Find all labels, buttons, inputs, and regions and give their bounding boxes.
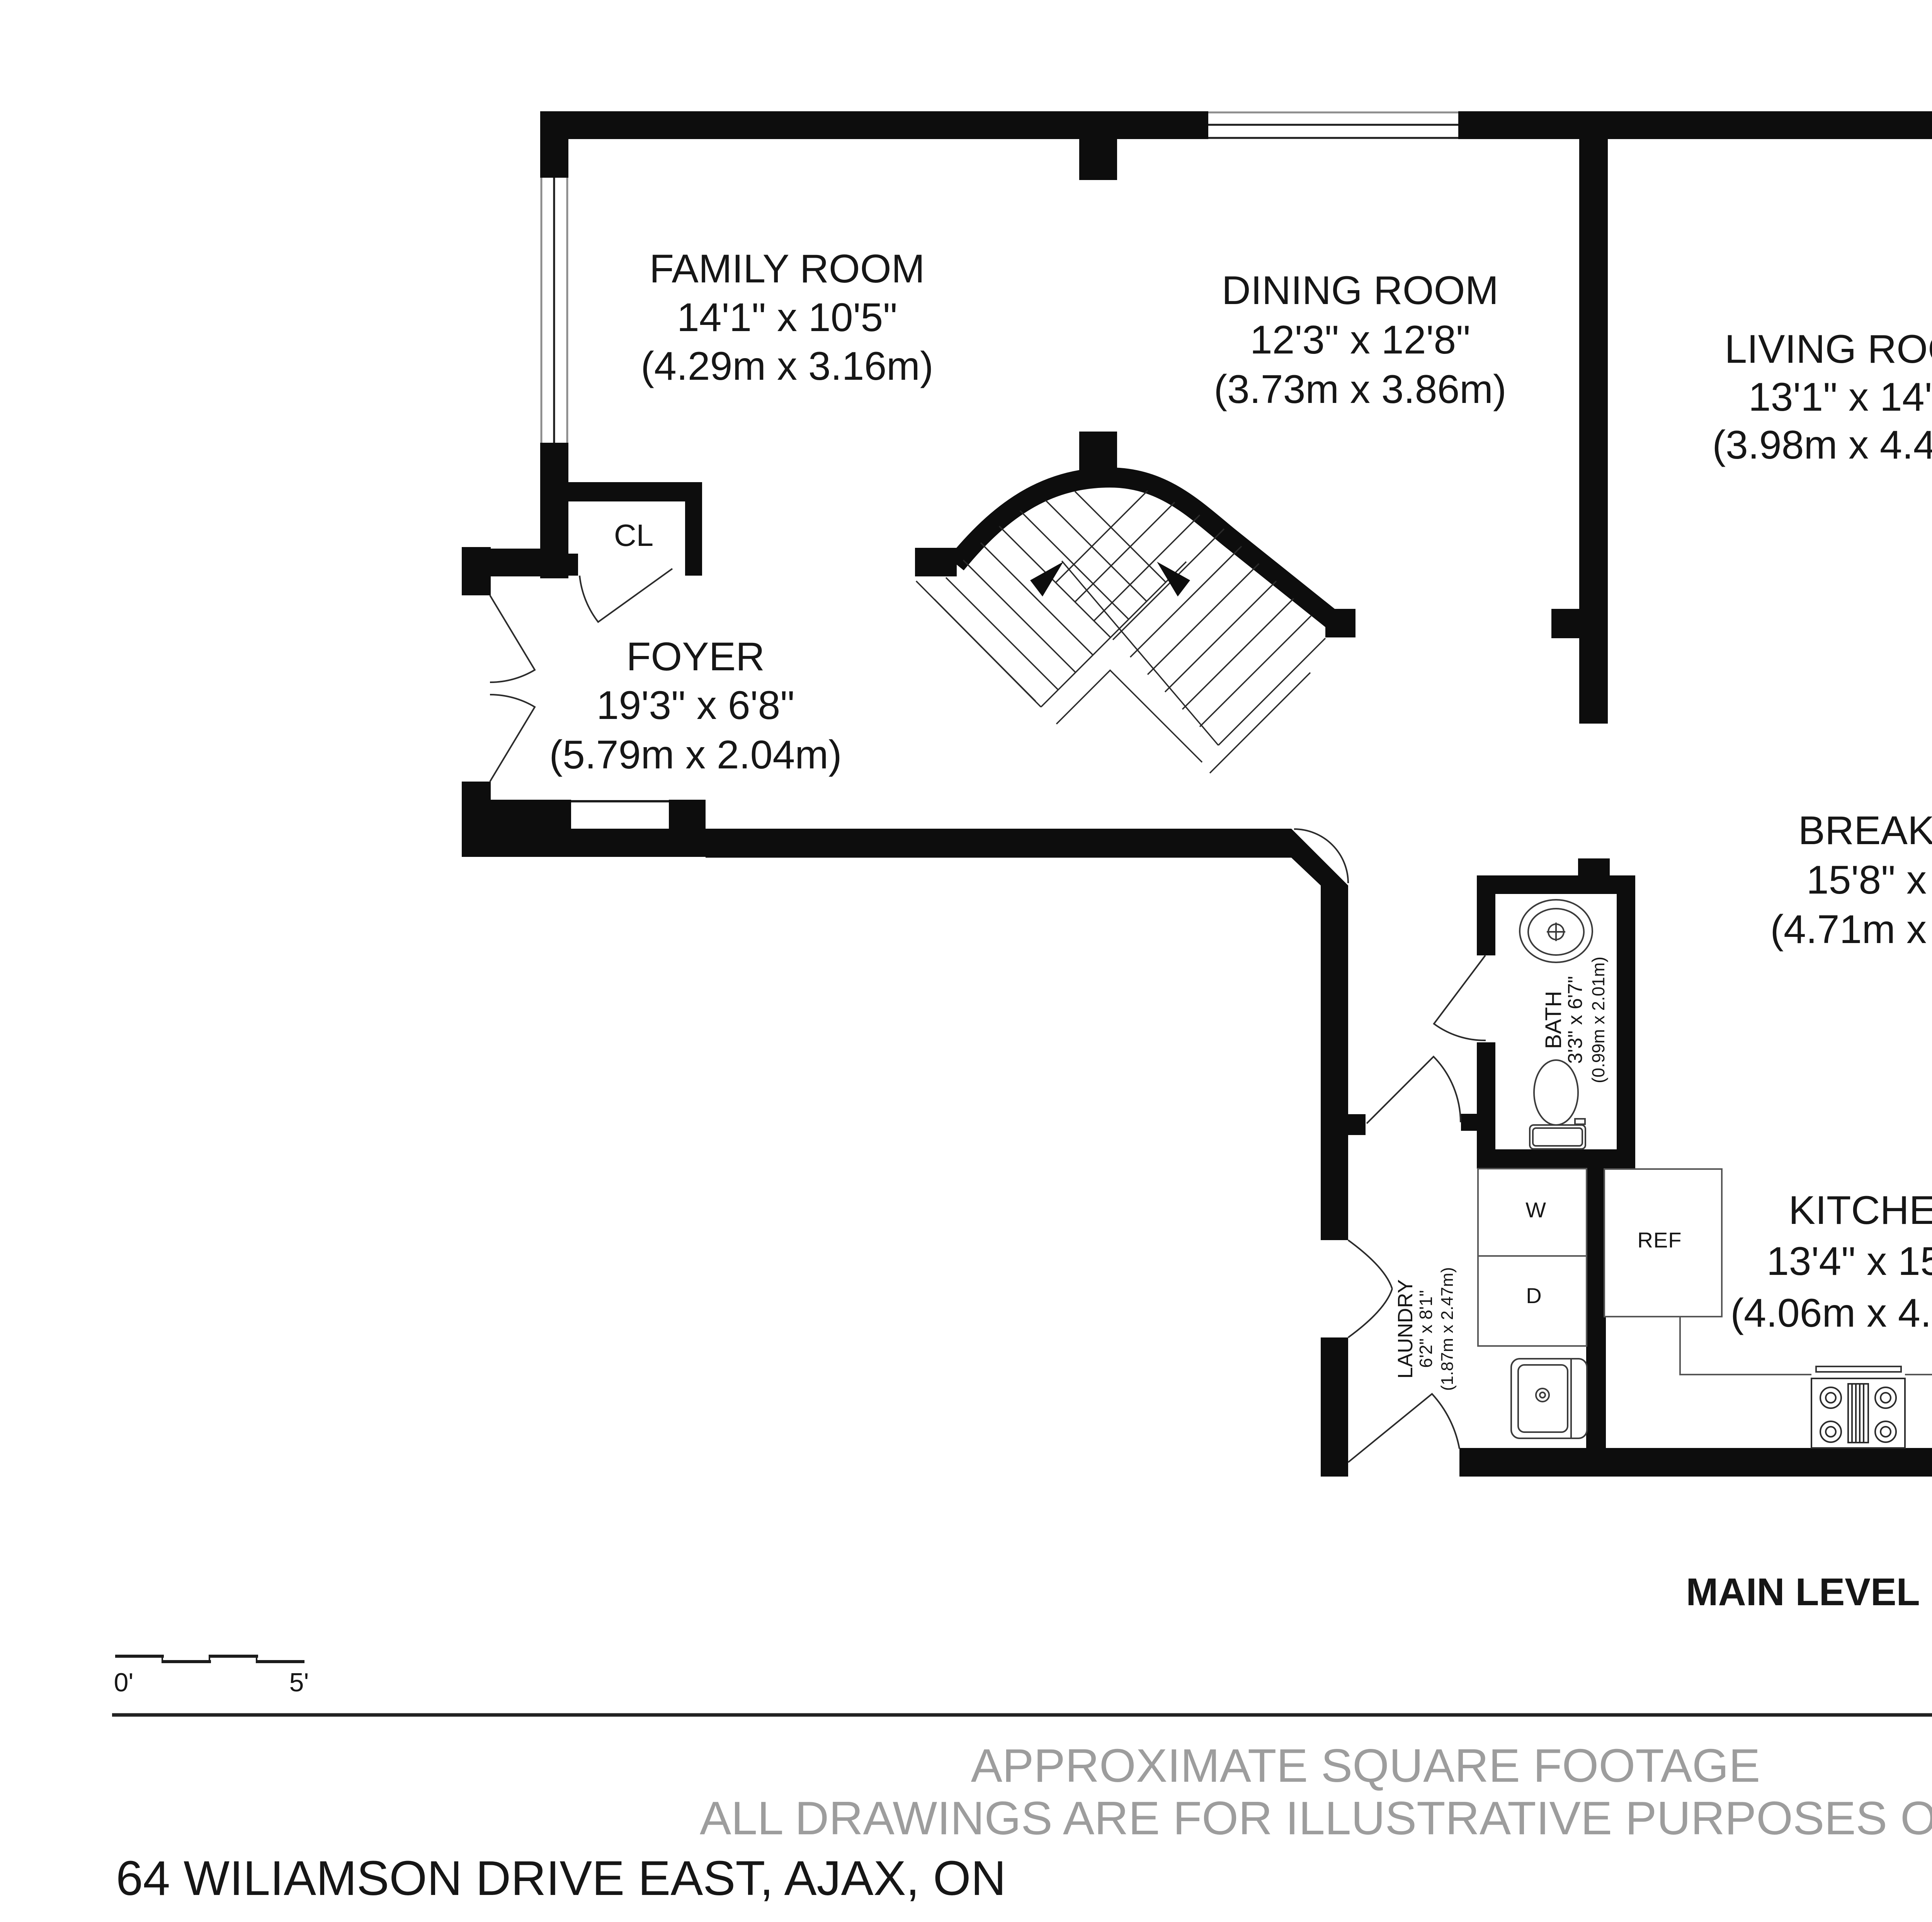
svg-text:MAIN LEVEL: MAIN LEVEL — [1686, 1570, 1920, 1614]
svg-text:BATH: BATH — [1541, 991, 1566, 1049]
svg-text:(1.87m x 2.47m): (1.87m x 2.47m) — [1438, 1267, 1457, 1391]
svg-text:15'8" x 10'9": 15'8" x 10'9" — [1806, 858, 1932, 902]
svg-text:(4.06m x 4.57m): (4.06m x 4.57m) — [1730, 1291, 1932, 1336]
svg-text:FAMILY ROOM: FAMILY ROOM — [650, 246, 925, 291]
svg-text:6'2" x 8'1": 6'2" x 8'1" — [1416, 1290, 1436, 1368]
svg-text:(4.71m x 3.26m): (4.71m x 3.26m) — [1770, 907, 1932, 952]
svg-text:D: D — [1526, 1283, 1542, 1308]
svg-text:13'1" x 14'7": 13'1" x 14'7" — [1748, 375, 1932, 420]
svg-text:KITCHEN: KITCHEN — [1789, 1188, 1932, 1233]
svg-text:REF: REF — [1638, 1228, 1682, 1252]
svg-text:5': 5' — [289, 1668, 309, 1697]
svg-text:(0.99m x 2.01m): (0.99m x 2.01m) — [1588, 957, 1608, 1083]
svg-text:(5.79m x 2.04m): (5.79m x 2.04m) — [549, 732, 842, 777]
svg-text:19'3" x 6'8": 19'3" x 6'8" — [597, 683, 795, 728]
svg-text:W: W — [1526, 1198, 1546, 1222]
svg-text:ALL DRAWINGS ARE FOR ILLUSTRAT: ALL DRAWINGS ARE FOR ILLUSTRATIVE PURPOS… — [700, 1792, 1932, 1844]
svg-text:14'1" x 10'5": 14'1" x 10'5" — [677, 295, 897, 340]
svg-text:64 WILIAMSON DRIVE EAST, AJAX,: 64 WILIAMSON DRIVE EAST, AJAX, ON — [116, 1851, 1006, 1905]
svg-text:0': 0' — [114, 1668, 134, 1697]
svg-text:APPROXIMATE SQUARE FOOTAGE: APPROXIMATE SQUARE FOOTAGE — [971, 1739, 1760, 1792]
svg-text:(4.29m x 3.16m): (4.29m x 3.16m) — [641, 344, 933, 389]
svg-text:BREAKFAST: BREAKFAST — [1798, 808, 1932, 853]
svg-text:FOYER: FOYER — [626, 634, 765, 679]
svg-text:LIVING ROOM: LIVING ROOM — [1725, 327, 1932, 372]
svg-text:LAUNDRY: LAUNDRY — [1394, 1279, 1417, 1378]
svg-text:13'4" x 15'0": 13'4" x 15'0" — [1767, 1239, 1932, 1284]
svg-text:3'3" x 6'7": 3'3" x 6'7" — [1564, 976, 1587, 1064]
svg-text:12'3" x 12'8": 12'3" x 12'8" — [1250, 318, 1470, 362]
svg-text:(3.73m x 3.86m): (3.73m x 3.86m) — [1214, 367, 1506, 412]
svg-text:DINING ROOM: DINING ROOM — [1222, 268, 1498, 313]
svg-text:(3.98m x 4.46m): (3.98m x 4.46m) — [1712, 423, 1932, 467]
svg-text:CL: CL — [614, 518, 653, 552]
